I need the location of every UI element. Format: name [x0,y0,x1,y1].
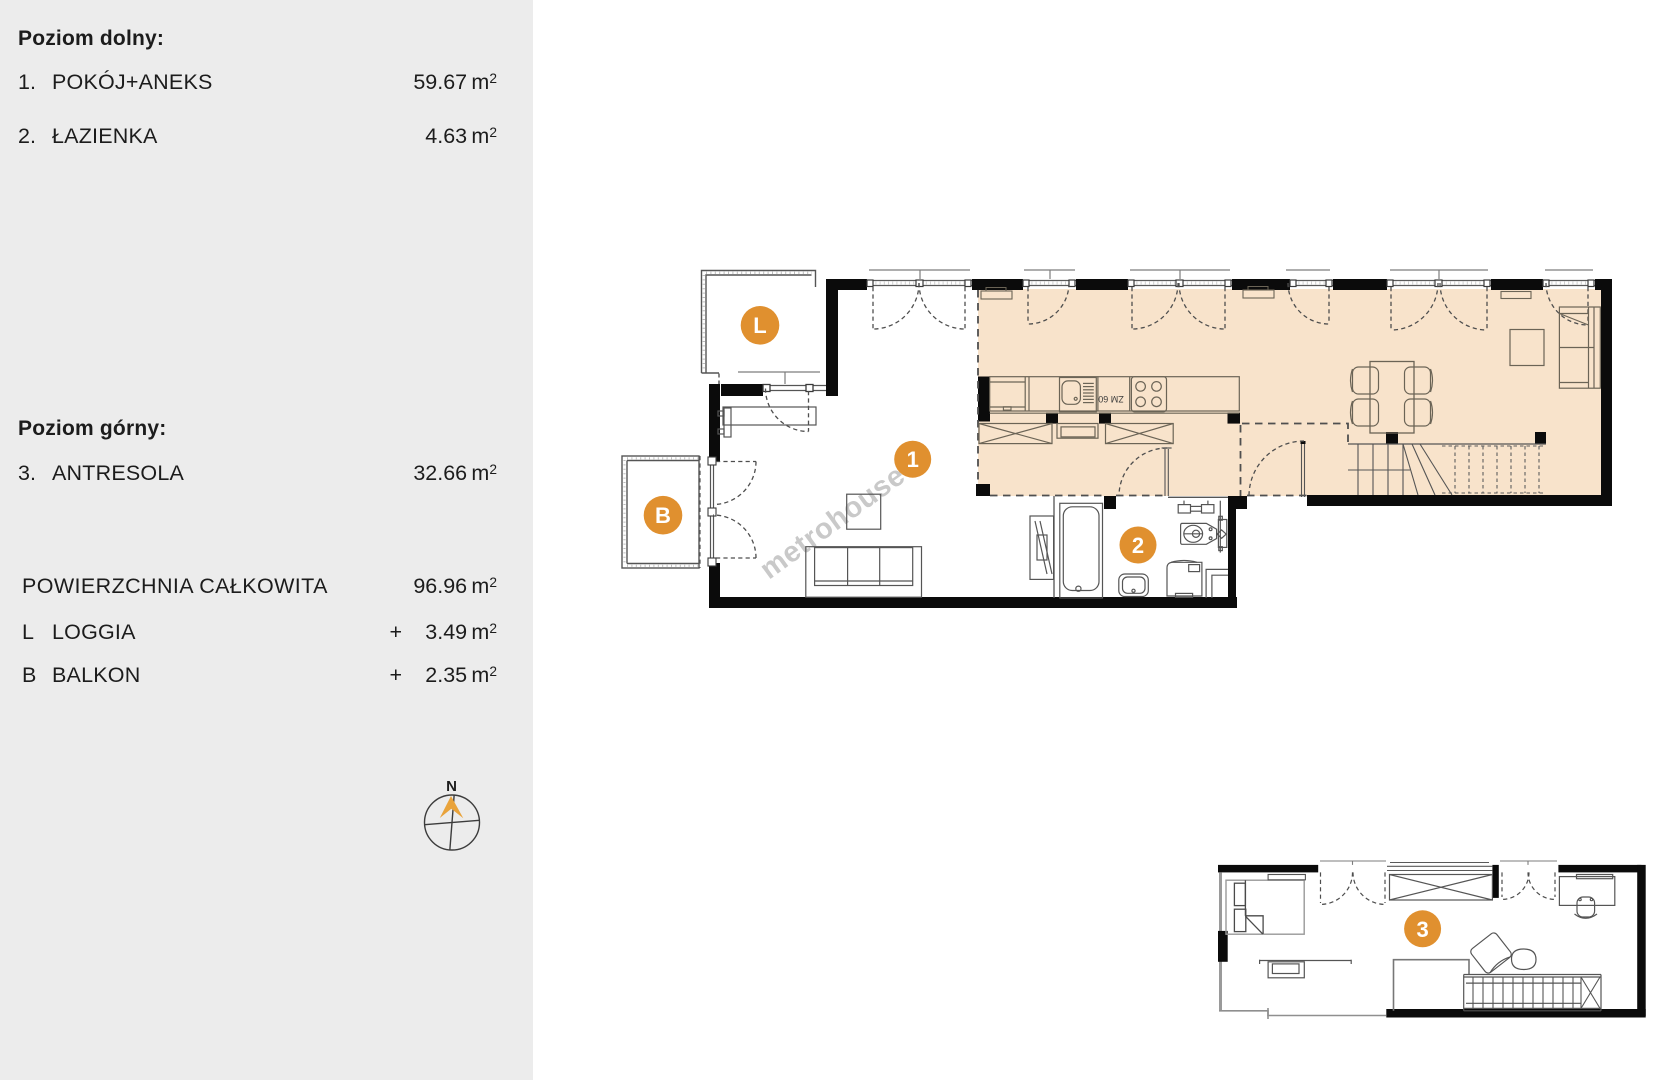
svg-text:ZM 60: ZM 60 [1098,394,1124,404]
svg-text:L: L [753,313,766,338]
svg-text:2: 2 [1132,533,1144,558]
svg-text:N: N [446,778,457,795]
svg-text:3: 3 [1416,917,1428,942]
svg-text:B: B [655,503,671,528]
svg-text:1: 1 [907,447,919,472]
